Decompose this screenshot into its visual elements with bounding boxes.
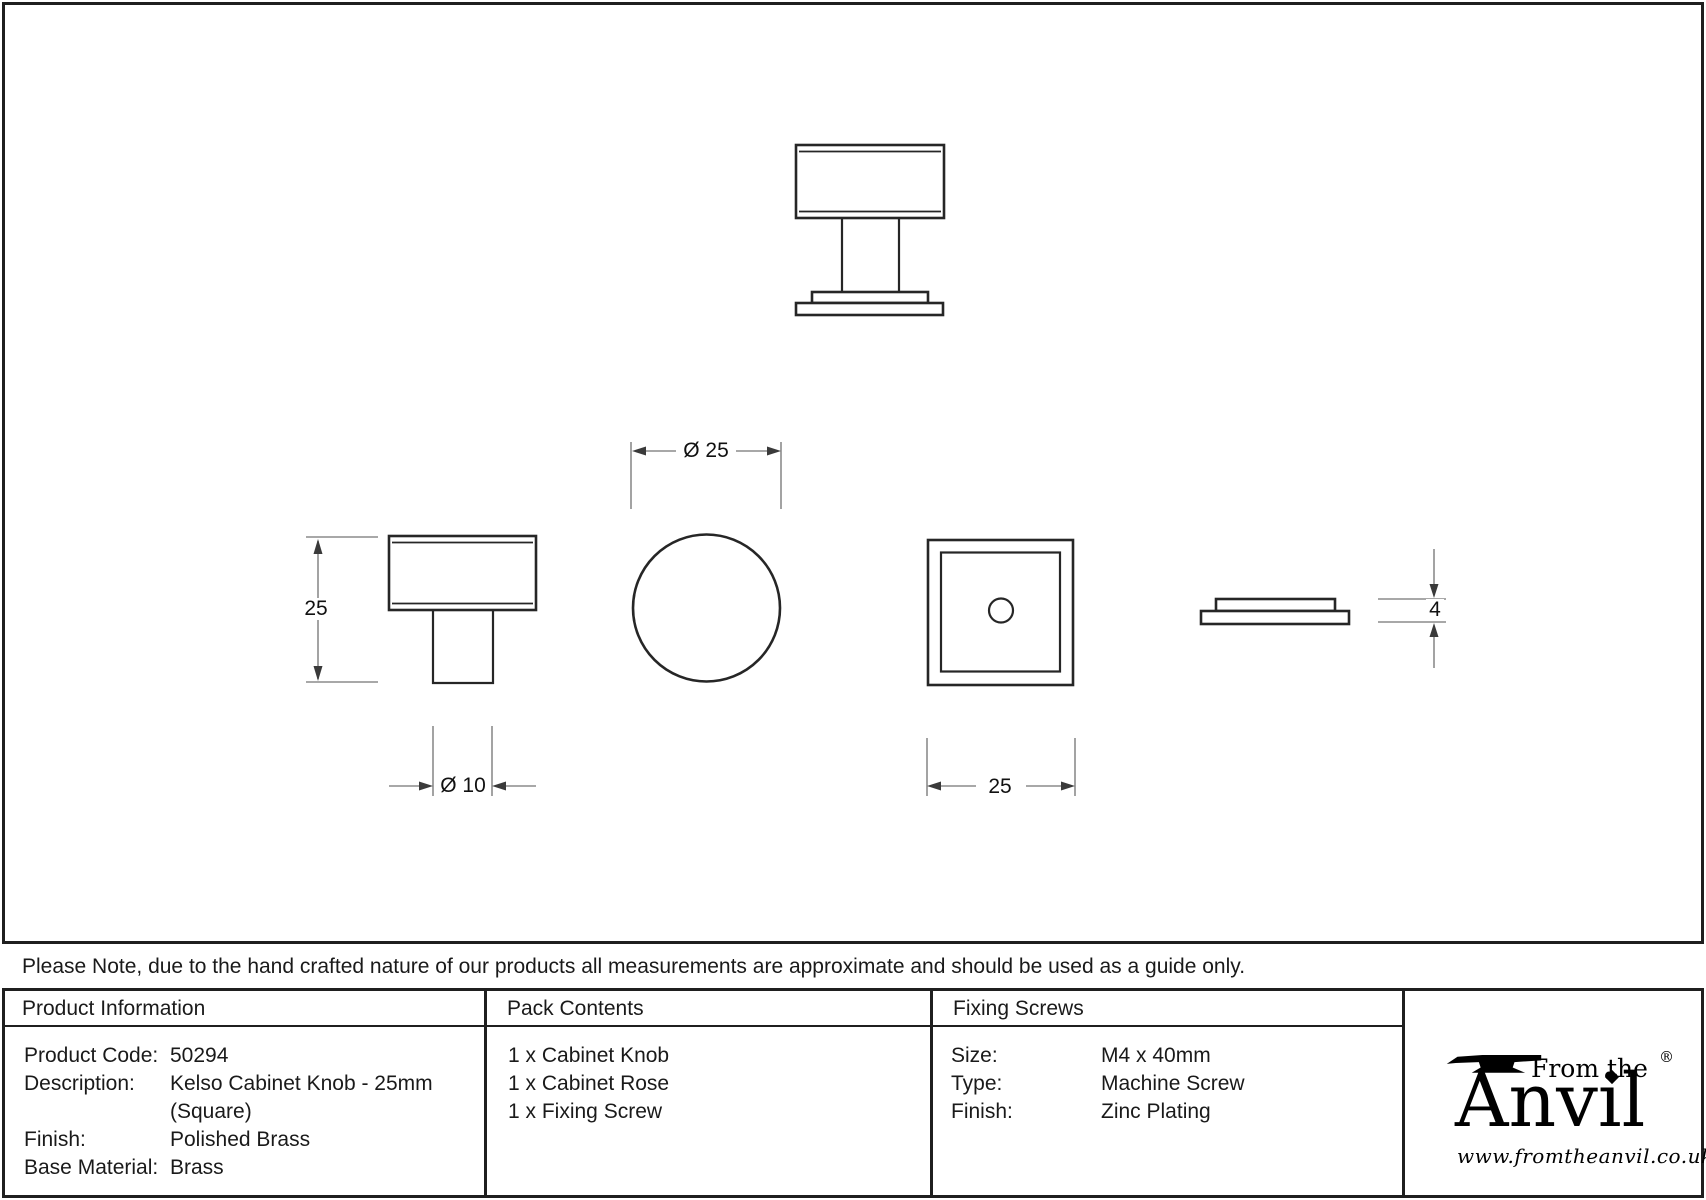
table-row: Description: Kelso Cabinet Knob - 25mm (… [2, 1070, 484, 1126]
knob-top-circle-view [633, 535, 780, 682]
registered-trademark-icon: ® [1659, 1048, 1674, 1066]
row-label: Size: [933, 1042, 1101, 1070]
rose-profile-view [1201, 599, 1349, 624]
pack-contents-column: Pack Contents 1 x Cabinet Knob 1 x Cabin… [487, 991, 933, 1196]
product-information-column: Product Information Product Code: 50294 … [2, 991, 487, 1196]
product-information-header: Product Information [2, 991, 484, 1027]
knob-square-face-view [928, 540, 1073, 685]
bottom-section: Please Note, due to the hand crafted nat… [2, 941, 1704, 1196]
fixing-screws-body: Size: M4 x 40mm Type: Machine Screw Fini… [933, 1027, 1402, 1126]
row-value: Brass [170, 1154, 224, 1182]
row-value: Polished Brass [170, 1126, 310, 1154]
knob-side-view [389, 536, 536, 683]
table-row: Base Material: Brass [2, 1154, 484, 1182]
row-value: 50294 [170, 1042, 228, 1070]
technical-drawing-linework [0, 0, 1706, 941]
table-row: Finish: Polished Brass [2, 1126, 484, 1154]
table-row: Size: M4 x 40mm [933, 1042, 1402, 1070]
row-value: Machine Screw [1101, 1070, 1245, 1098]
fixing-screws-header: Fixing Screws [933, 991, 1402, 1027]
list-item: 1 x Cabinet Knob [487, 1042, 930, 1070]
measurement-note: Please Note, due to the hand crafted nat… [2, 941, 1704, 988]
row-label: Base Material: [2, 1154, 170, 1182]
dimension-label-rose-thickness: 4 [1426, 599, 1444, 621]
product-information-body: Product Code: 50294 Description: Kelso C… [2, 1027, 484, 1182]
brand-url: www.fromtheanvil.co.uk [1457, 1144, 1697, 1168]
row-label: Finish: [933, 1098, 1101, 1126]
knob-front-view [796, 145, 944, 315]
row-value: Zinc Plating [1101, 1098, 1211, 1126]
table-row: Product Code: 50294 [2, 1042, 484, 1070]
row-value: Kelso Cabinet Knob - 25mm (Square) [170, 1070, 450, 1126]
dimension-label-stem-diameter: Ø 10 [437, 775, 489, 797]
pack-contents-body: 1 x Cabinet Knob 1 x Cabinet Rose 1 x Fi… [487, 1027, 930, 1126]
row-label: Product Code: [2, 1042, 170, 1070]
dimension-label-knob-width: 25 [982, 776, 1018, 798]
pack-contents-header: Pack Contents [487, 991, 930, 1027]
dimension-label-knob-diameter: Ø 25 [676, 440, 736, 462]
row-value: M4 x 40mm [1101, 1042, 1211, 1070]
row-label: Description: [2, 1070, 170, 1126]
list-item: 1 x Fixing Screw [487, 1098, 930, 1126]
dimension-label-knob-height: 25 [296, 598, 336, 620]
row-label: Finish: [2, 1126, 170, 1154]
row-label: Type: [933, 1070, 1101, 1098]
spec-table: Product Information Product Code: 50294 … [2, 988, 1704, 1196]
from-the-anvil-logo: From the ® Anvil www.fromtheanvil.co.uk [1455, 1048, 1685, 1158]
brand-logo-cell: From the ® Anvil www.fromtheanvil.co.uk [1405, 991, 1704, 1196]
fixing-screws-column: Fixing Screws Size: M4 x 40mm Type: Mach… [933, 991, 1405, 1196]
table-row: Type: Machine Screw [933, 1070, 1402, 1098]
technical-drawing-area: 25 Ø 10 Ø 25 25 4 [0, 0, 1706, 941]
spec-sheet-page: 25 Ø 10 Ø 25 25 4 Please Note, due to th… [0, 0, 1706, 1200]
list-item: 1 x Cabinet Rose [487, 1070, 930, 1098]
table-row: Finish: Zinc Plating [933, 1098, 1402, 1126]
